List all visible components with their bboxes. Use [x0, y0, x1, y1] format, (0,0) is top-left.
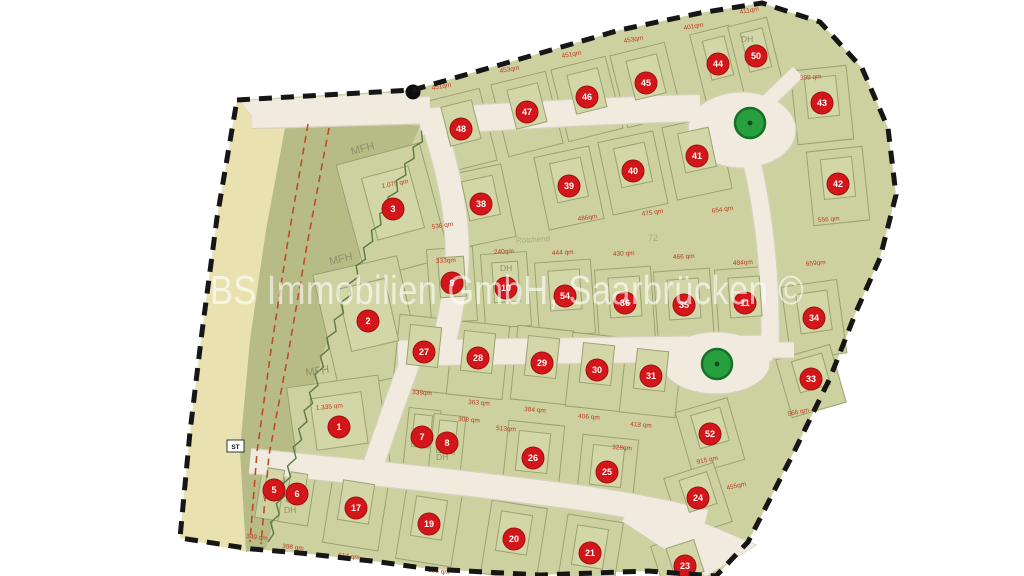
plot-number-text-48: 48	[456, 124, 466, 134]
plot-number-text-2: 2	[365, 316, 370, 326]
plot-number-text-31: 31	[646, 371, 656, 381]
house-type-label-50: DH	[741, 34, 753, 44]
plot-number-text-33: 33	[806, 374, 816, 384]
plot-number-text-3: 3	[390, 204, 395, 214]
plot-size-label-9: 333qm	[436, 257, 456, 265]
plot-number-text-42: 42	[833, 179, 843, 189]
plot-number-text-45: 45	[641, 78, 651, 88]
plot-number-text-1: 1	[336, 422, 341, 432]
plot-number-text-39: 39	[564, 181, 574, 191]
street-name-label: Rotchend	[516, 234, 551, 245]
plot-number-text-47: 47	[522, 107, 532, 117]
site-plan-map: 451qm453qm451qm453qm401qm411qmDH399 qm55…	[0, 0, 1024, 576]
plot-number-text-43: 43	[817, 98, 827, 108]
plot-number-text-27: 27	[419, 347, 429, 357]
plot-number-text-41: 41	[692, 151, 702, 161]
plot-number-text-21: 21	[585, 548, 595, 558]
plot-number-text-34: 34	[809, 313, 819, 323]
plot-number-text-19: 19	[424, 519, 434, 529]
plot-number-text-17: 17	[351, 503, 361, 513]
plot-number-text-23: 23	[680, 561, 690, 571]
plot-number-text-20: 20	[509, 534, 519, 544]
plot-size-label-26: 513qm	[496, 425, 516, 433]
plot-size-label-35: 466 qm	[673, 253, 695, 261]
watermark-text: BS Immobilien GmbH, Saarbrücken ©	[210, 267, 804, 313]
plot-size-label-54: 444 qm	[552, 249, 574, 257]
plot-number-text-38: 38	[476, 199, 486, 209]
street-name-label: 72	[648, 233, 658, 243]
plot-number-text-40: 40	[628, 166, 638, 176]
plot-number-text-28: 28	[473, 353, 483, 363]
plot-number-text-30: 30	[592, 365, 602, 375]
plot-number-text-29: 29	[537, 358, 547, 368]
plot-size-label-11: 484qm	[733, 259, 753, 267]
plot-number-text-50: 50	[751, 51, 761, 61]
plot-number-text-7: 7	[419, 432, 424, 442]
plot-number-text-8: 8	[444, 438, 449, 448]
house-type-label-6: DH	[284, 505, 296, 515]
plot-size-label-27: 338qm	[412, 389, 432, 397]
station-label: ST	[231, 444, 239, 451]
plot-number-text-25: 25	[602, 467, 612, 477]
site-plan: 451qm453qm451qm453qm401qm411qmDH399 qm55…	[0, 0, 1024, 576]
plot-size-label-36: 430 qm	[613, 250, 635, 258]
tree-marker-center	[715, 362, 720, 367]
plot-number-text-6: 6	[294, 489, 299, 499]
plot-number-text-26: 26	[528, 453, 538, 463]
plot-size-label-10: 240qm	[494, 248, 514, 256]
plot-number-text-52: 52	[705, 429, 715, 439]
plot-number-text-24: 24	[693, 493, 703, 503]
plot-number-text-5: 5	[271, 485, 276, 495]
plot-number-text-44: 44	[713, 59, 723, 69]
plot-size-label-25: 328qm	[612, 444, 632, 452]
plot-number-text-46: 46	[582, 92, 592, 102]
tree-marker-center	[748, 121, 753, 126]
